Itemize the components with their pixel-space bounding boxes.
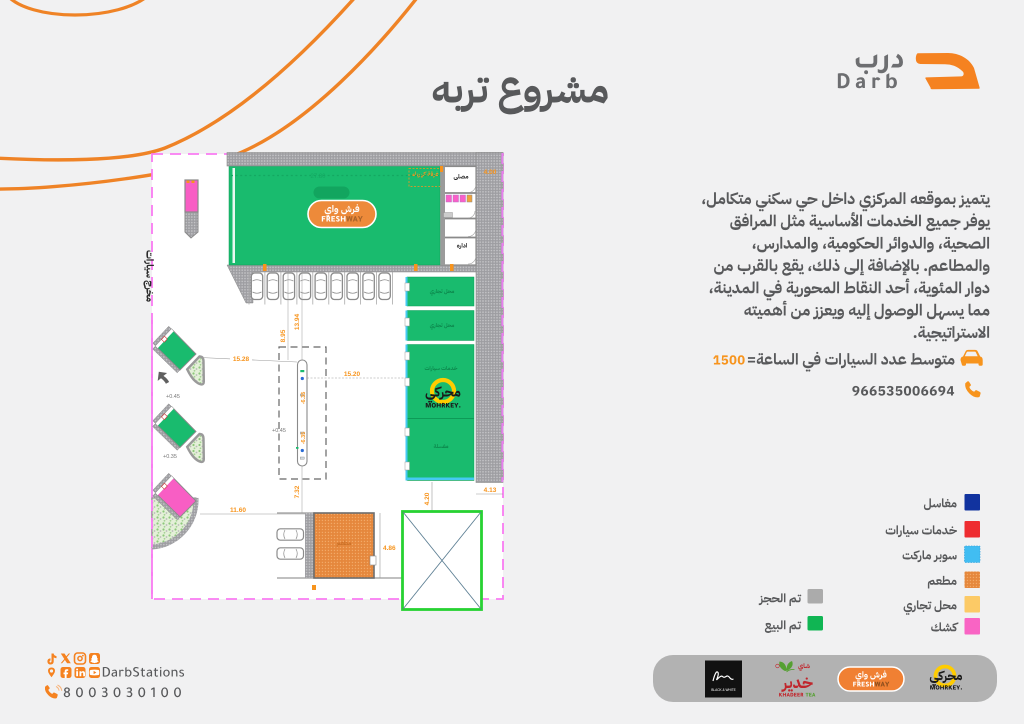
svg-text:11.60: 11.60 bbox=[230, 507, 246, 514]
svg-text:+0.45: +0.45 bbox=[166, 394, 180, 400]
svg-text:BLACK & WHITE: BLACK & WHITE bbox=[711, 688, 736, 692]
svg-text:7.32: 7.32 bbox=[294, 485, 301, 498]
svg-text:4.00: 4.00 bbox=[484, 169, 497, 176]
svg-text:8.95: 8.95 bbox=[280, 329, 287, 342]
svg-text:4.13: 4.13 bbox=[484, 487, 497, 494]
svg-text:+0.45: +0.45 bbox=[272, 428, 286, 434]
svg-text:+0.35: +0.35 bbox=[163, 454, 177, 460]
svg-text:27.80: 27.80 bbox=[310, 174, 326, 180]
svg-text:4.86: 4.86 bbox=[383, 545, 396, 552]
svg-text:15.28: 15.28 bbox=[233, 356, 250, 363]
svg-text:-6.35: -6.35 bbox=[301, 392, 307, 405]
svg-text:13.94: 13.94 bbox=[294, 313, 301, 330]
svg-text:-6.35: -6.35 bbox=[301, 432, 307, 445]
svg-text:15.20: 15.20 bbox=[344, 371, 361, 378]
svg-text:4.20: 4.20 bbox=[424, 492, 431, 505]
